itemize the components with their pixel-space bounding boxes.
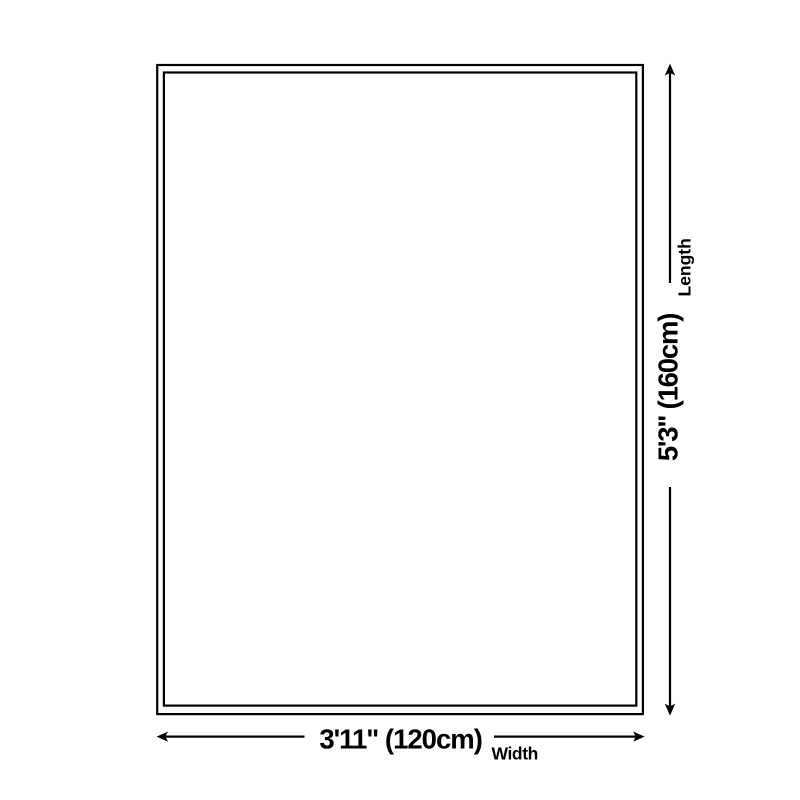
svg-text:Length: Length xyxy=(674,238,694,296)
svg-text:Width: Width xyxy=(492,744,538,764)
svg-text:3'11" (120cm): 3'11" (120cm) xyxy=(319,724,482,755)
svg-text:5'3" (160cm): 5'3" (160cm) xyxy=(653,314,684,461)
